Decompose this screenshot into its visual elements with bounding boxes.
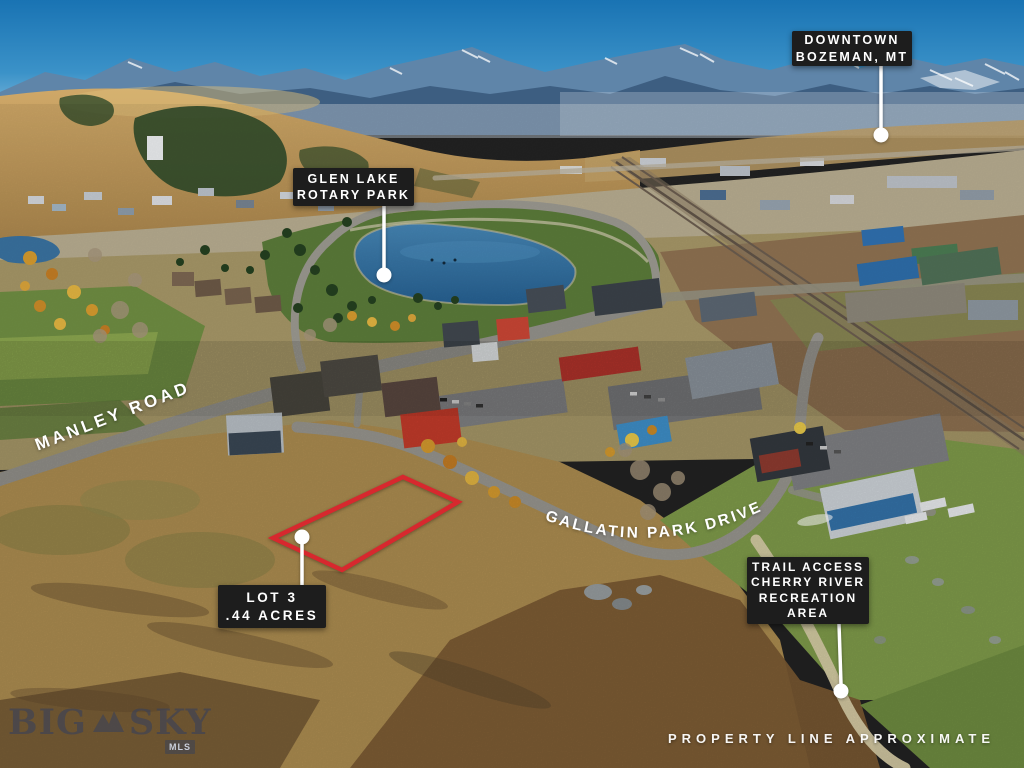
glen-lake-label-line2: ROTARY PARK: [293, 187, 414, 204]
trail-access-label: TRAIL ACCESS CHERRY RIVER RECREATION ARE…: [747, 557, 869, 624]
watermark-word1: BIG: [8, 702, 87, 743]
lot-label-line1: LOT 3: [218, 589, 326, 607]
watermark: BIG SKY MLS: [8, 702, 212, 743]
lot-label-line2: .44 ACRES: [218, 607, 326, 625]
aerial-photo: [0, 0, 1024, 768]
mountain-icon: [91, 702, 125, 743]
trail-access-label-line1: TRAIL ACCESS: [747, 560, 869, 576]
watermark-word2: SKY: [129, 702, 212, 743]
glen-lake-label: GLEN LAKE ROTARY PARK: [293, 168, 414, 206]
downtown-label-line2: BOZEMAN, MT: [792, 49, 912, 66]
trail-access-label-line4: AREA: [747, 606, 869, 622]
downtown-label: DOWNTOWN BOZEMAN, MT: [792, 31, 912, 66]
trail-access-label-line2: CHERRY RIVER: [747, 575, 869, 591]
downtown-label-line1: DOWNTOWN: [792, 32, 912, 49]
lot-label: LOT 3 .44 ACRES: [218, 585, 326, 628]
glen-lake-label-line1: GLEN LAKE: [293, 171, 414, 188]
mls-badge: MLS: [165, 740, 195, 754]
aerial-listing-screenshot: GALLATIN PARK DRIVE DOWNTOWN BOZEMAN, MT…: [0, 0, 1024, 768]
trail-access-label-line3: RECREATION: [747, 591, 869, 607]
property-line-label: PROPERTY LINE APPROXIMATE: [668, 731, 995, 746]
